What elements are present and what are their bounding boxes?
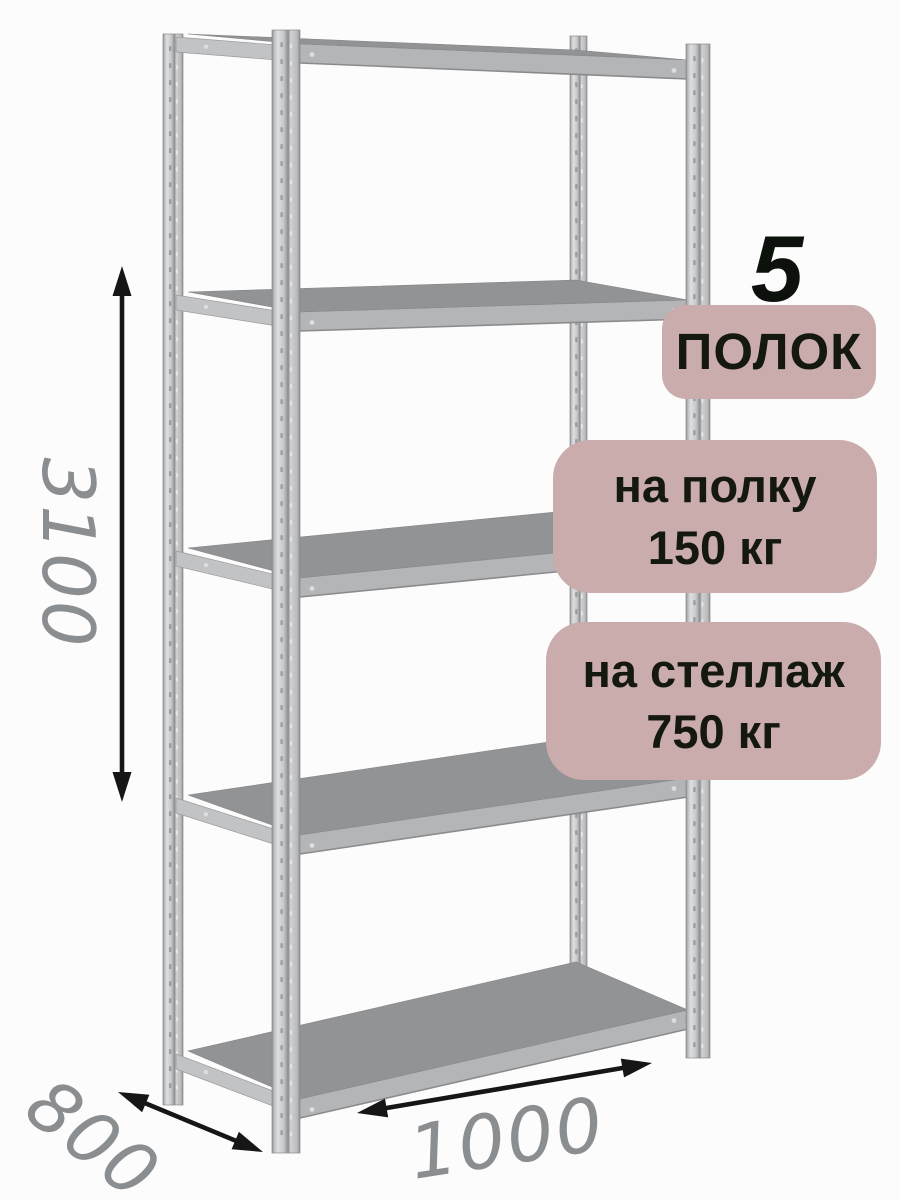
rack-load-line2: 750 кг (646, 701, 781, 762)
shelf-2 (176, 280, 688, 331)
shelf-load-badge: на полку 150 кг (553, 440, 877, 593)
post-back-left (163, 34, 183, 1105)
shelf-count-badge: ПОЛОК (662, 305, 876, 399)
shelf-load-line2: 150 кг (648, 517, 783, 578)
rack-3d-render (0, 0, 900, 1200)
shelf-1 (176, 34, 688, 79)
post-front-left (272, 30, 300, 1153)
rack-load-line1: на стеллаж (582, 640, 844, 701)
rack-load-badge: на стеллаж 750 кг (546, 622, 881, 780)
product-image: 3100 800 1000 5 ПОЛОК на полку 150 кг на… (0, 0, 900, 1200)
shelf-count-badge-label: ПОЛОК (676, 319, 863, 385)
height-dimension-label: 3100 (31, 451, 105, 655)
shelf-load-line1: на полку (613, 455, 816, 516)
height-arrow (113, 266, 132, 802)
